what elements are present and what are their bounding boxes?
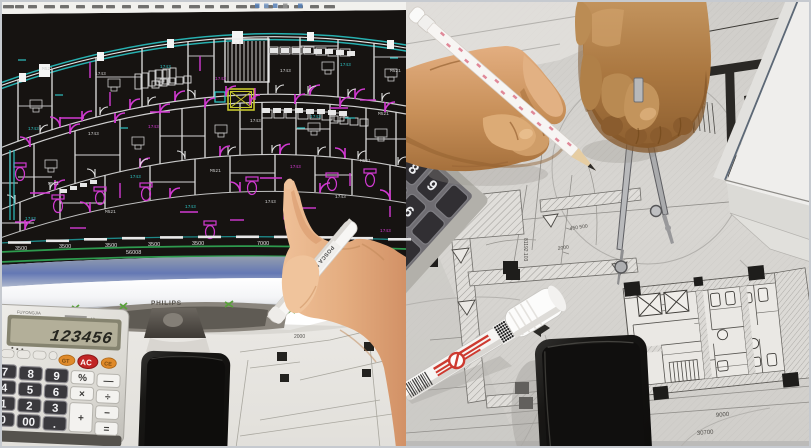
svg-text:÷: ÷	[105, 392, 111, 403]
svg-text:1743: 1743	[335, 194, 346, 200]
svg-text:9: 9	[53, 371, 60, 383]
svg-text:9000: 9000	[716, 412, 730, 419]
svg-text:FUYONGJIA: FUYONGJIA	[17, 310, 41, 316]
svg-text:56008: 56008	[126, 250, 141, 256]
svg-text:—: —	[103, 376, 113, 387]
svg-text:1743: 1743	[280, 68, 291, 74]
svg-text:AC: AC	[80, 358, 92, 368]
svg-text:M521: M521	[378, 111, 389, 117]
svg-text:PHILIPS: PHILIPS	[151, 300, 182, 307]
svg-text:1743: 1743	[380, 228, 391, 234]
svg-text:8: 8	[27, 369, 35, 381]
svg-text:=: =	[103, 424, 109, 435]
svg-text:GT: GT	[62, 359, 71, 365]
svg-text:1743: 1743	[290, 164, 301, 170]
svg-text:123456: 123456	[49, 327, 114, 349]
svg-text:1743: 1743	[148, 124, 159, 130]
svg-text:1743: 1743	[28, 126, 39, 132]
svg-text:M521: M521	[210, 168, 221, 174]
svg-text:×: ×	[79, 389, 85, 400]
svg-text:M521: M521	[42, 66, 53, 72]
svg-text:%: %	[78, 373, 87, 384]
svg-text:1743: 1743	[25, 216, 36, 222]
svg-text:1743: 1743	[340, 62, 351, 68]
svg-text:00: 00	[22, 416, 35, 429]
svg-text:1743: 1743	[160, 64, 171, 70]
svg-text:6: 6	[52, 387, 59, 399]
svg-text:M521: M521	[390, 68, 401, 74]
svg-text:1743: 1743	[265, 199, 276, 205]
svg-text:1743: 1743	[95, 71, 106, 77]
svg-text:+: +	[78, 413, 84, 424]
svg-text:1743: 1743	[215, 76, 226, 82]
svg-text:M521: M521	[360, 158, 371, 164]
svg-text:M521: M521	[105, 209, 116, 215]
svg-text:1743: 1743	[250, 118, 261, 124]
svg-text:7: 7	[1, 366, 8, 378]
svg-text:CE: CE	[104, 361, 112, 367]
svg-text:2: 2	[26, 401, 33, 413]
svg-text:1743: 1743	[130, 174, 141, 180]
svg-text:2000: 2000	[294, 334, 305, 340]
svg-text:.: .	[53, 419, 57, 431]
svg-text:5: 5	[27, 385, 35, 397]
svg-text:1743: 1743	[88, 131, 99, 137]
svg-text:−: −	[104, 408, 110, 419]
svg-text:81192.103: 81192.103	[522, 238, 528, 261]
svg-text:1743: 1743	[310, 114, 321, 120]
svg-text:3: 3	[52, 403, 59, 415]
svg-text:M521: M521	[48, 181, 59, 187]
svg-text:1743: 1743	[185, 204, 196, 210]
